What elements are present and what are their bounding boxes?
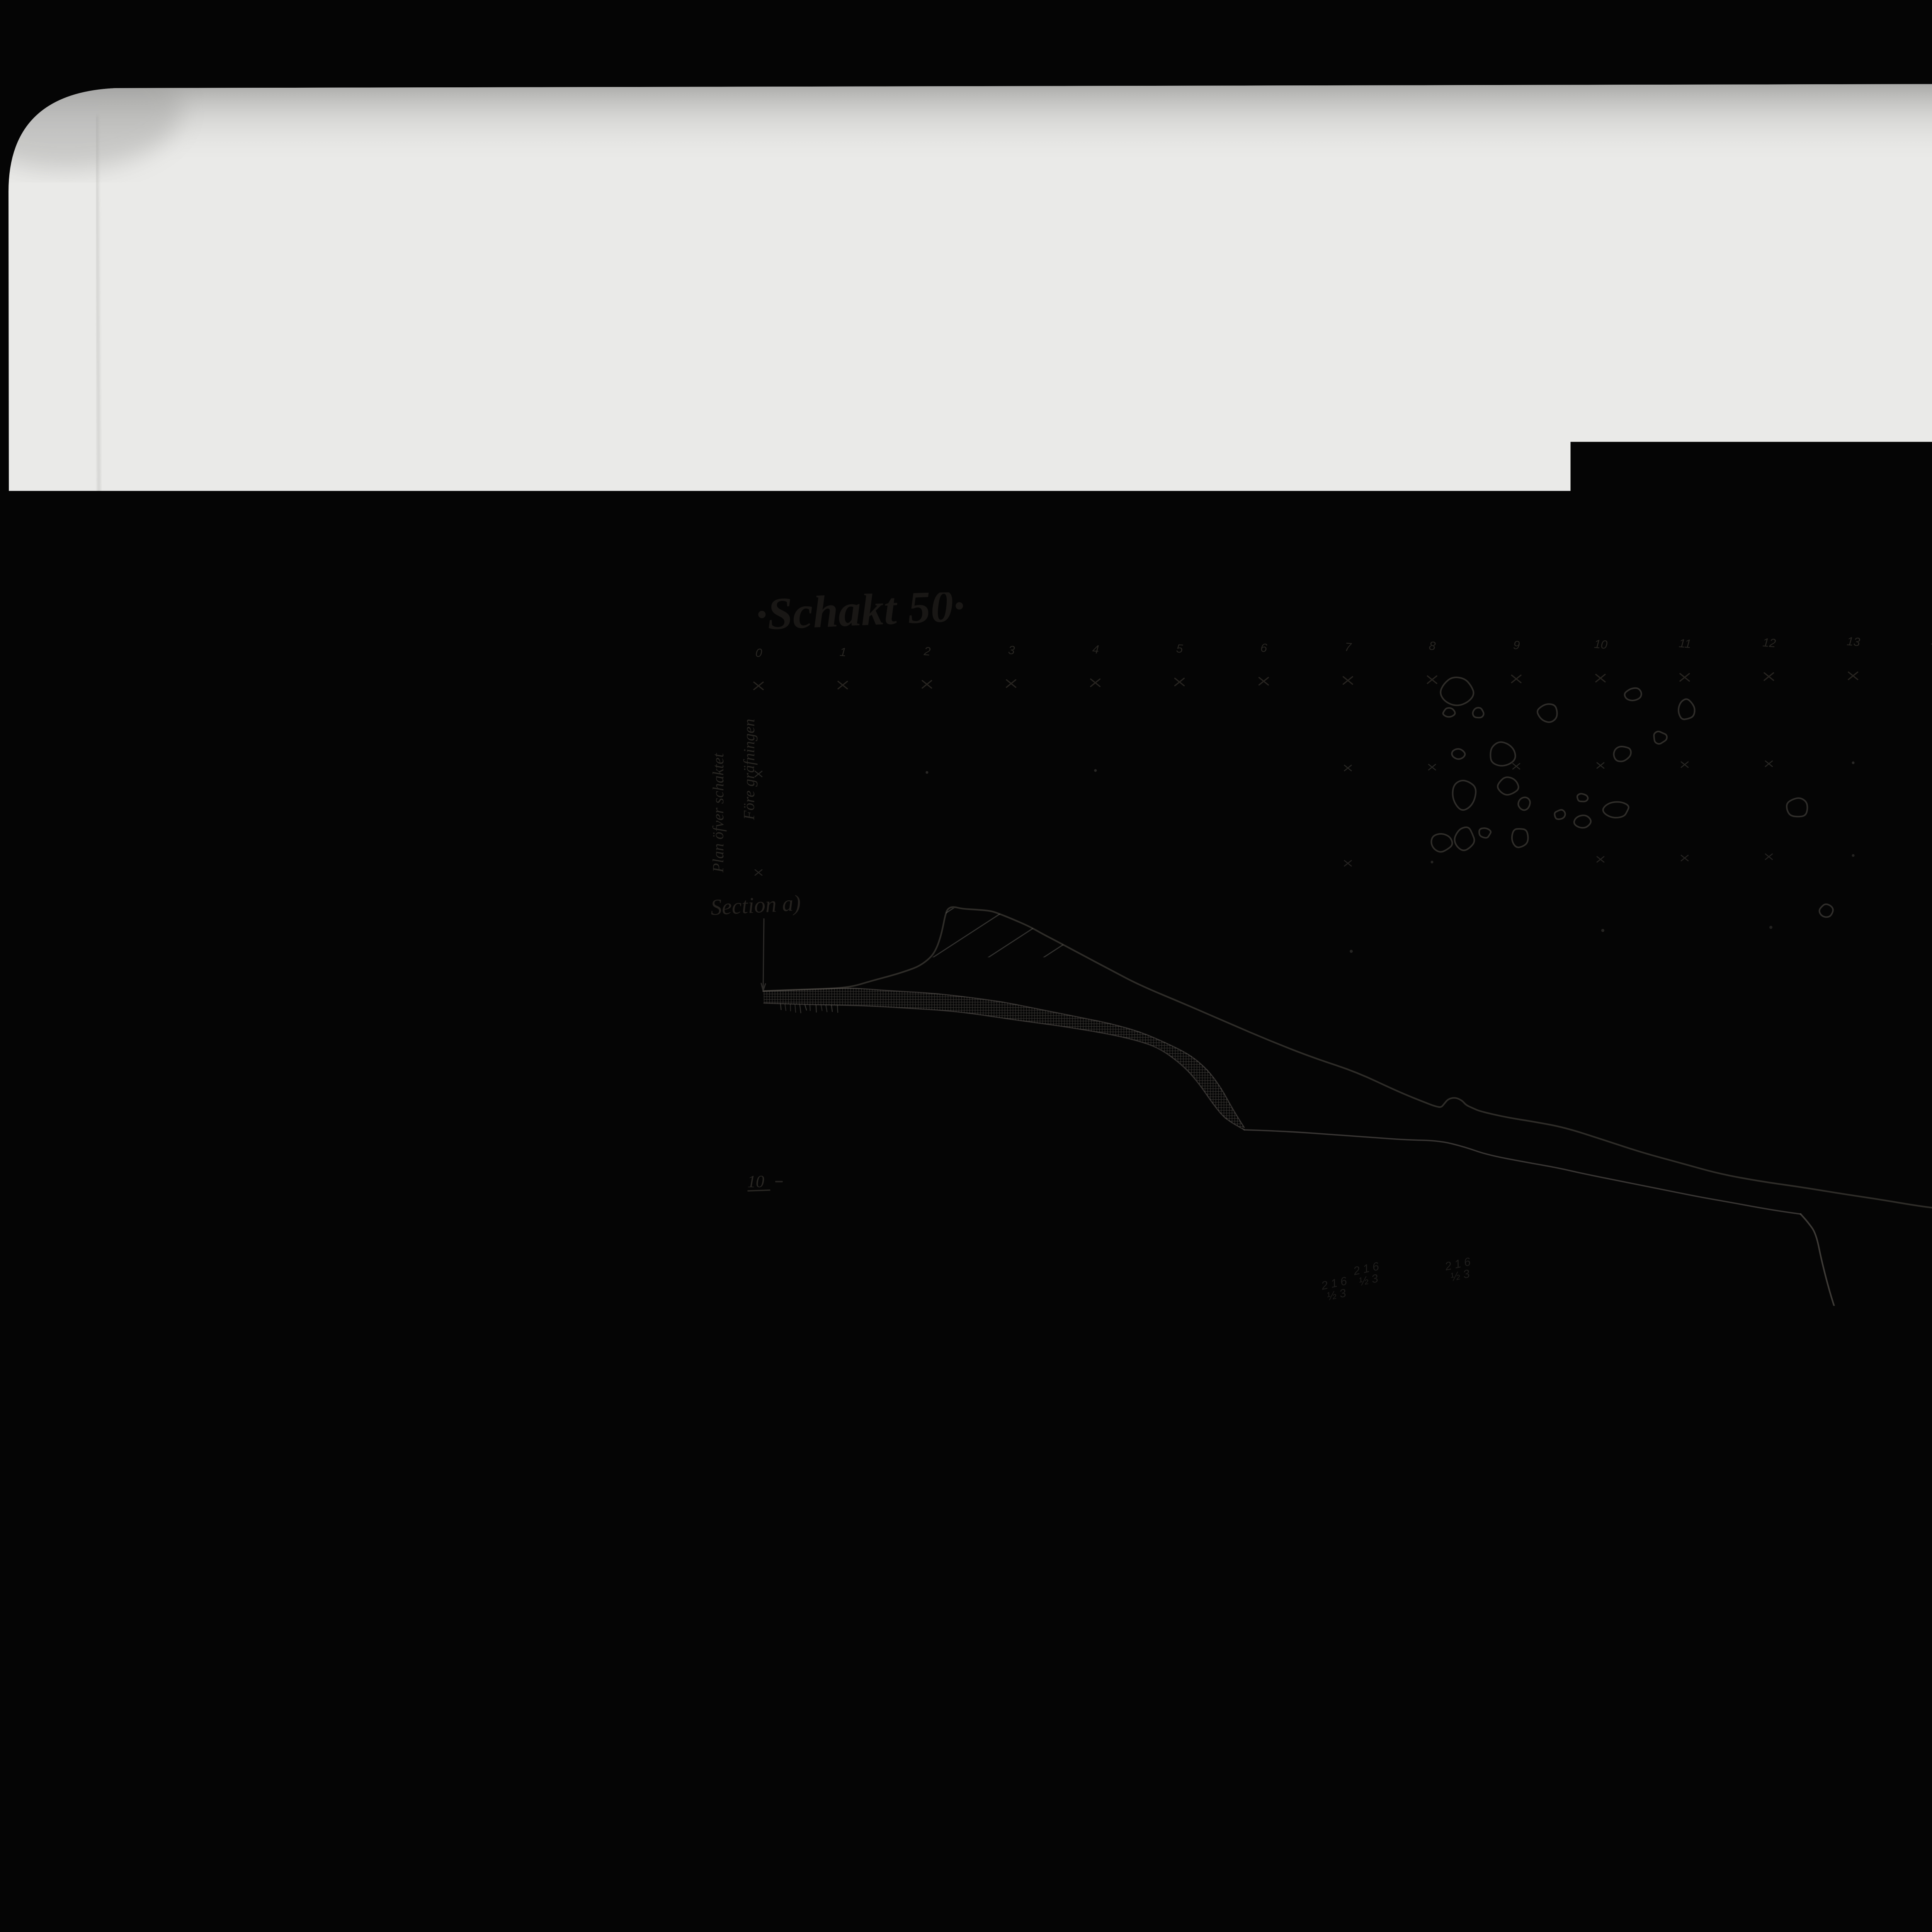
svg-text:10: 10	[747, 1172, 764, 1191]
svg-text:Section a): Section a)	[710, 890, 801, 920]
svg-text:5: 5	[1176, 641, 1184, 655]
svg-text:8: 8	[1429, 639, 1436, 653]
svg-text:3: 3	[1008, 643, 1015, 657]
svg-text:Ugglebackens.: Ugglebackens.	[641, 549, 888, 600]
svg-text:Före gräfningen: Före gräfningen	[740, 719, 758, 820]
svg-text:Plan öfver schaktet: Plan öfver schaktet	[709, 753, 727, 873]
svg-text:Gustavsbergs frds.: Gustavsbergs frds.	[1877, 526, 1932, 577]
svg-text:a: a	[681, 1747, 703, 1757]
svg-text:ned mot gropen.: ned mot gropen.	[1357, 1680, 1473, 1703]
svg-text:4: 4	[1092, 642, 1100, 656]
svg-text:11: 11	[1678, 636, 1692, 651]
svg-text:något kol, både röda sandst. s: något kol, både röda sandst. små	[1872, 1519, 1932, 1539]
svg-text:13: 13	[1846, 634, 1861, 649]
svg-text:Tegellagret i gropen är: Tegellagret i gropen är	[1877, 1453, 1932, 1474]
svg-text:0: 0	[755, 646, 763, 660]
svg-text:2: 2	[923, 644, 931, 658]
svg-text:1917: 1917	[1638, 1378, 1682, 1403]
svg-text:b: b	[678, 1863, 700, 1873]
svg-text:PLAN, PROF. SCHAKT 50: PLAN, PROF. SCHAKT 50	[1456, 1350, 1682, 1374]
svg-text:9: 9	[1513, 638, 1520, 652]
svg-text:UP10462F: UP10462F	[1504, 1429, 1591, 1454]
svg-text:af en ljus rödbrun färg.: af en ljus rödbrun färg.	[1875, 1476, 1932, 1496]
svg-text:1: 1	[839, 645, 847, 659]
svg-text:Aug. 1917: Aug. 1917	[943, 1517, 1019, 1540]
svg-text:10: 10	[1594, 637, 1608, 651]
svg-text:Spjutspets: Spjutspets	[1164, 1139, 1221, 1157]
svg-text:6: 6	[1260, 641, 1268, 655]
svg-text:kolsmulor.: kolsmulor.	[1875, 1541, 1932, 1559]
svg-text:12: 12	[1762, 636, 1776, 650]
svg-text:1 ALSNÖHUS SLOTTSRUIN: 1 ALSNÖHUS SLOTTSRUIN	[1406, 1304, 1645, 1330]
